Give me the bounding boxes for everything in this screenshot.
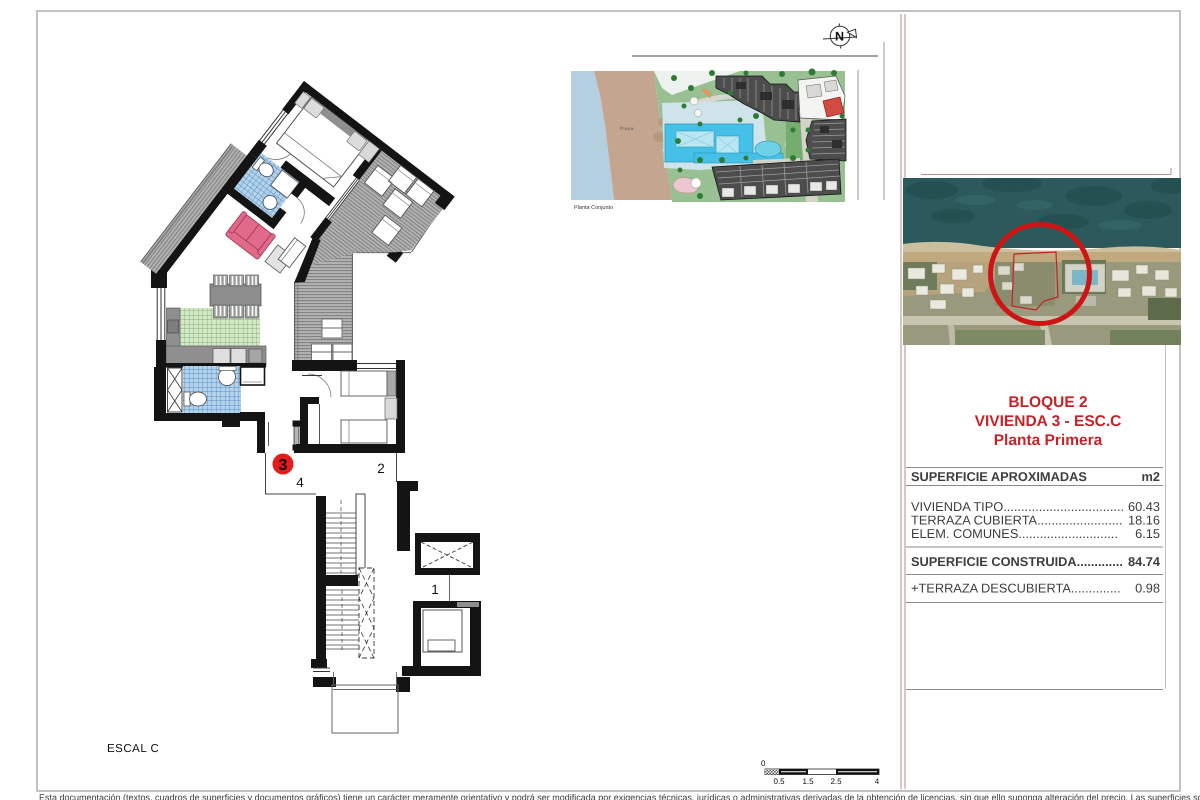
svg-text:Esta documentación (textos, cu: Esta documentación (textos, cuadros de s…: [39, 793, 1200, 800]
svg-text:+TERRAZA DESCUBIERTA..........: +TERRAZA DESCUBIERTA..............: [911, 581, 1121, 596]
svg-text:1: 1: [431, 582, 439, 597]
svg-text:ELEM. COMUNES.................: ELEM. COMUNES...........................…: [911, 526, 1118, 541]
svg-text:Planta Primera: Planta Primera: [994, 432, 1103, 449]
svg-text:6.15: 6.15: [1135, 526, 1160, 541]
svg-text:m2: m2: [1142, 469, 1161, 484]
svg-text:0.5: 0.5: [773, 777, 785, 786]
svg-text:0.98: 0.98: [1135, 581, 1160, 596]
svg-text:2.5: 2.5: [830, 777, 842, 786]
svg-text:SUPERFICIE APROXIMADAS: SUPERFICIE APROXIMADAS: [911, 469, 1087, 484]
svg-text:Playa: Playa: [620, 126, 634, 131]
svg-text:4: 4: [875, 777, 880, 786]
svg-text:Planta Conjunto: Planta Conjunto: [574, 205, 613, 211]
svg-text:BLOQUE 2: BLOQUE 2: [1008, 394, 1087, 411]
svg-text:N: N: [835, 30, 844, 44]
svg-text:1.5: 1.5: [802, 777, 814, 786]
svg-text:2: 2: [377, 461, 385, 476]
svg-text:ESCAL C: ESCAL C: [107, 743, 159, 755]
svg-text:SUPERFICIE CONSTRUIDA.........: SUPERFICIE CONSTRUIDA.............: [911, 554, 1123, 569]
svg-text:3: 3: [279, 457, 288, 474]
svg-text:4: 4: [296, 475, 304, 490]
svg-text:84.74: 84.74: [1128, 554, 1161, 569]
svg-text:0: 0: [761, 759, 766, 768]
svg-text:VIVIENDA 3 - ESC.C: VIVIENDA 3 - ESC.C: [975, 413, 1122, 430]
